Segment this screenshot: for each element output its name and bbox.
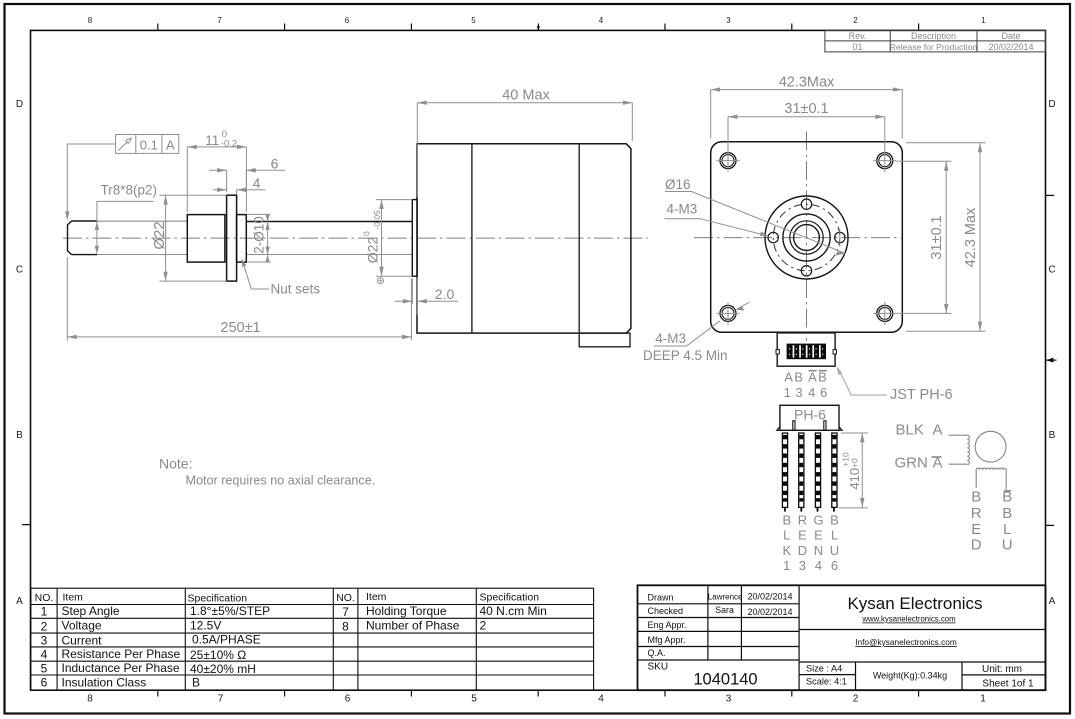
svg-text:B: B xyxy=(971,489,981,506)
svg-text:5: 5 xyxy=(471,694,477,705)
svg-text:U: U xyxy=(1002,537,1013,554)
svg-text:4-M3: 4-M3 xyxy=(655,331,686,346)
svg-text:250±1: 250±1 xyxy=(220,320,260,336)
svg-text:Ø22: Ø22 xyxy=(151,221,168,249)
svg-text:31±0.1: 31±0.1 xyxy=(784,101,828,117)
svg-text:L: L xyxy=(783,528,790,543)
svg-text:PH-6: PH-6 xyxy=(794,407,826,423)
svg-text:3: 3 xyxy=(726,16,731,25)
svg-text:4: 4 xyxy=(815,558,822,573)
svg-text:K: K xyxy=(782,543,791,558)
svg-text:NO.: NO. xyxy=(336,592,355,604)
svg-text:SKU: SKU xyxy=(648,661,669,672)
svg-text:12.5V: 12.5V xyxy=(190,619,221,633)
svg-text:1: 1 xyxy=(41,605,48,619)
svg-text:A: A xyxy=(784,370,793,385)
svg-text:4: 4 xyxy=(808,385,815,400)
svg-text:E: E xyxy=(798,528,807,543)
svg-text:2: 2 xyxy=(853,16,858,25)
svg-text:BLK: BLK xyxy=(896,422,924,439)
svg-text:B: B xyxy=(192,675,200,689)
svg-text:3: 3 xyxy=(799,558,806,573)
svg-text:U: U xyxy=(830,543,839,558)
svg-text:B: B xyxy=(818,370,827,385)
svg-text:4-M3: 4-M3 xyxy=(667,202,698,217)
svg-text:5: 5 xyxy=(471,16,476,25)
svg-text:JST PH-6: JST PH-6 xyxy=(890,387,953,403)
svg-text:Kysan Electronics: Kysan Electronics xyxy=(847,594,982,613)
svg-text:4: 4 xyxy=(253,175,261,191)
svg-text:C: C xyxy=(16,265,23,276)
svg-text:4: 4 xyxy=(598,694,604,705)
svg-text:L: L xyxy=(1003,521,1011,538)
svg-text:4: 4 xyxy=(41,647,48,661)
svg-text:3: 3 xyxy=(726,694,732,705)
svg-text:410: 410 xyxy=(847,468,862,490)
svg-text:www.kysanelectronics.com: www.kysanelectronics.com xyxy=(861,615,955,624)
svg-text:Rev.: Rev. xyxy=(849,31,867,41)
svg-text:Lawrence: Lawrence xyxy=(708,593,743,602)
svg-text:20/02/2014: 20/02/2014 xyxy=(747,592,792,602)
svg-text:20/02/2014: 20/02/2014 xyxy=(747,607,792,617)
svg-text:Ø16: Ø16 xyxy=(665,177,691,192)
svg-text:+0: +0 xyxy=(850,458,860,468)
svg-text:NO.: NO. xyxy=(35,592,54,604)
svg-text:6: 6 xyxy=(345,694,351,705)
svg-text:Tr8*8(p2): Tr8*8(p2) xyxy=(101,183,158,198)
svg-text:B: B xyxy=(16,430,23,441)
svg-text:40±20% mH: 40±20% mH xyxy=(190,662,256,676)
svg-text:7: 7 xyxy=(218,694,224,705)
svg-text:D: D xyxy=(971,537,982,554)
svg-text:40 N.cm Min: 40 N.cm Min xyxy=(480,604,547,618)
svg-text:GRN: GRN xyxy=(895,455,928,472)
svg-text:Scale: 4:1: Scale: 4:1 xyxy=(806,677,847,687)
svg-text:A: A xyxy=(1049,596,1056,607)
svg-text:Eng Appr.: Eng Appr. xyxy=(648,620,687,630)
svg-text:8: 8 xyxy=(342,620,349,634)
svg-text:2.0: 2.0 xyxy=(435,286,455,302)
svg-text:6: 6 xyxy=(831,558,838,573)
svg-text:0: 0 xyxy=(362,231,372,236)
svg-text:7: 7 xyxy=(217,16,222,25)
svg-text:6: 6 xyxy=(345,16,350,25)
svg-text:B: B xyxy=(794,370,803,385)
svg-text:C: C xyxy=(1048,265,1055,276)
svg-text:5: 5 xyxy=(41,661,48,675)
svg-text:Voltage: Voltage xyxy=(62,619,102,633)
svg-text:Size : A4: Size : A4 xyxy=(806,664,842,674)
svg-text:A: A xyxy=(808,370,817,385)
svg-text:Resistance Per Phase: Resistance Per Phase xyxy=(62,647,181,661)
svg-text:42.3 Max: 42.3 Max xyxy=(963,207,979,267)
svg-text:Number of Phase: Number of Phase xyxy=(366,619,460,633)
svg-text:Note:: Note: xyxy=(159,456,192,472)
svg-text:Inductance Per Phase: Inductance Per Phase xyxy=(62,661,180,675)
svg-text:A: A xyxy=(16,596,23,607)
svg-text:2: 2 xyxy=(853,694,859,705)
svg-text:8: 8 xyxy=(87,694,93,705)
svg-text:G: G xyxy=(813,513,823,528)
svg-text:42.3Max: 42.3Max xyxy=(779,74,835,90)
svg-text:Specification: Specification xyxy=(480,592,540,604)
svg-text:Specification: Specification xyxy=(188,593,248,605)
svg-text:Item: Item xyxy=(63,591,84,603)
svg-text:Sara: Sara xyxy=(715,605,734,615)
svg-text:0.5A/PHASE: 0.5A/PHASE xyxy=(192,633,261,647)
svg-text:2-Ø10: 2-Ø10 xyxy=(252,216,267,254)
svg-text:Current: Current xyxy=(62,633,103,647)
svg-text:Mfg Appr.: Mfg Appr. xyxy=(648,635,686,645)
svg-text:Weight(Kg):0.34kg: Weight(Kg):0.34kg xyxy=(873,671,947,681)
svg-text:DEEP 4.5 Min: DEEP 4.5 Min xyxy=(643,348,728,363)
svg-text:8: 8 xyxy=(88,16,93,25)
svg-text:Release for Production: Release for Production xyxy=(890,42,978,52)
svg-text:1: 1 xyxy=(784,385,791,400)
svg-text:25±10% Ω: 25±10% Ω xyxy=(190,648,246,662)
svg-text:Description: Description xyxy=(911,31,956,41)
svg-text:6: 6 xyxy=(820,385,827,400)
svg-text:1: 1 xyxy=(980,694,986,705)
svg-text:Sheet 1of 1: Sheet 1of 1 xyxy=(982,678,1034,689)
svg-text:4: 4 xyxy=(599,16,604,25)
svg-text:1: 1 xyxy=(783,558,790,573)
svg-text:R: R xyxy=(798,513,807,528)
svg-text:N: N xyxy=(814,543,823,558)
svg-text:11: 11 xyxy=(205,133,219,148)
svg-text:B: B xyxy=(1049,430,1056,441)
svg-text:2: 2 xyxy=(41,620,48,634)
svg-text:0.1: 0.1 xyxy=(140,137,158,152)
svg-text:Q.A.: Q.A. xyxy=(648,648,666,658)
svg-text:A: A xyxy=(166,137,175,152)
svg-text:E: E xyxy=(814,528,823,543)
svg-text:-0.2: -0.2 xyxy=(221,139,237,150)
svg-text:1040140: 1040140 xyxy=(693,670,757,688)
svg-text:01: 01 xyxy=(852,42,862,52)
svg-text:Item: Item xyxy=(366,591,387,603)
svg-text:1: 1 xyxy=(981,16,986,25)
svg-text:-0.05: -0.05 xyxy=(372,210,382,230)
svg-text:Ø22: Ø22 xyxy=(365,237,381,264)
svg-text:A: A xyxy=(933,422,943,439)
svg-text:B: B xyxy=(830,513,839,528)
svg-text:Unit: mm: Unit: mm xyxy=(982,664,1022,675)
svg-text:2: 2 xyxy=(480,619,487,633)
svg-text:40 Max: 40 Max xyxy=(502,88,550,104)
svg-text:Checked: Checked xyxy=(648,606,684,616)
svg-text:31±0.1: 31±0.1 xyxy=(929,215,945,259)
svg-text:D: D xyxy=(16,99,23,110)
svg-text:20/02/2014: 20/02/2014 xyxy=(988,42,1033,52)
svg-text:D: D xyxy=(1048,99,1055,110)
svg-text:Date: Date xyxy=(1001,31,1020,41)
svg-text:Info@kysanelectronics.com: Info@kysanelectronics.com xyxy=(855,637,957,647)
svg-text:D: D xyxy=(798,543,807,558)
svg-text:B: B xyxy=(782,513,791,528)
svg-text:Insulation Class: Insulation Class xyxy=(62,675,147,689)
svg-text:6: 6 xyxy=(271,156,279,172)
svg-text:3: 3 xyxy=(41,633,48,647)
svg-text:E: E xyxy=(971,521,981,538)
svg-text:R: R xyxy=(971,505,982,522)
svg-text:Step Angle: Step Angle xyxy=(62,604,120,618)
svg-text:1.8°±5%/STEP: 1.8°±5%/STEP xyxy=(190,604,270,618)
svg-text:6: 6 xyxy=(41,675,48,689)
svg-text:Nut sets: Nut sets xyxy=(271,281,321,296)
svg-text:Drawn: Drawn xyxy=(648,593,674,603)
svg-text:3: 3 xyxy=(795,385,802,400)
svg-text:7: 7 xyxy=(342,605,349,619)
svg-text:Holding Torque: Holding Torque xyxy=(366,604,447,618)
svg-text:L: L xyxy=(831,528,838,543)
svg-text:Motor requires no axial cleara: Motor requires no axial clearance. xyxy=(186,473,376,487)
svg-text:B: B xyxy=(1002,505,1012,522)
